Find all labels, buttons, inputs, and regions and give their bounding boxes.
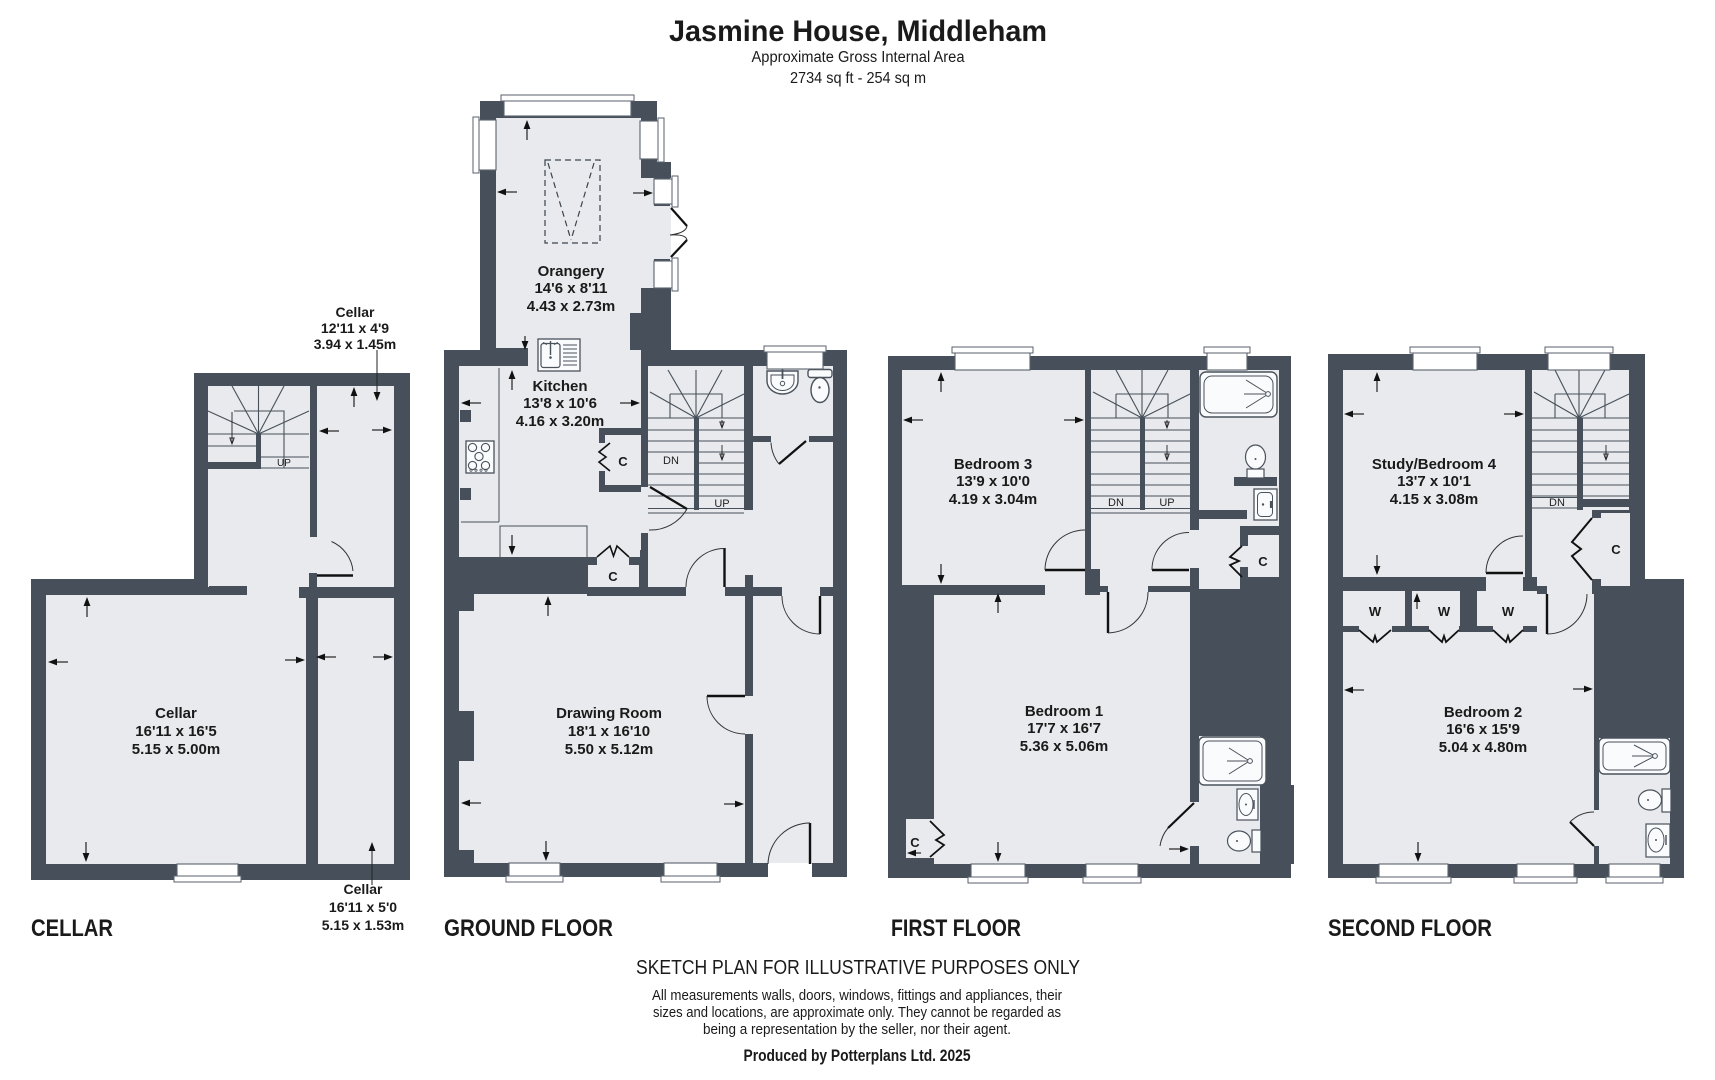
svg-text:Cellar: Cellar xyxy=(155,705,197,722)
svg-text:C: C xyxy=(1611,542,1621,557)
svg-text:5.36 x 5.06m: 5.36 x 5.06m xyxy=(1020,738,1108,755)
svg-text:4.16 x 3.20m: 4.16 x 3.20m xyxy=(516,413,604,430)
svg-text:5.50 x 5.12m: 5.50 x 5.12m xyxy=(565,741,653,758)
svg-text:13'7 x 10'1: 13'7 x 10'1 xyxy=(1397,473,1471,490)
svg-text:UP: UP xyxy=(277,458,291,469)
svg-text:2734 sq ft - 254 sq m: 2734 sq ft - 254 sq m xyxy=(790,70,926,87)
svg-text:C: C xyxy=(608,569,618,584)
svg-text:5.15 x 5.00m: 5.15 x 5.00m xyxy=(132,741,220,758)
svg-text:W: W xyxy=(1438,604,1451,619)
svg-text:3.94 x 1.45m: 3.94 x 1.45m xyxy=(314,336,397,352)
svg-text:Bedroom 2: Bedroom 2 xyxy=(1444,704,1522,721)
svg-text:5.04 x 4.80m: 5.04 x 4.80m xyxy=(1439,739,1527,756)
svg-text:14'6 x 8'11: 14'6 x 8'11 xyxy=(534,280,607,297)
svg-text:18'1 x 16'10: 18'1 x 16'10 xyxy=(568,723,650,740)
svg-text:13'9 x 10'0: 13'9 x 10'0 xyxy=(956,473,1030,490)
svg-text:13'8 x 10'6: 13'8 x 10'6 xyxy=(523,395,597,412)
svg-text:Bedroom 1: Bedroom 1 xyxy=(1025,703,1103,720)
svg-text:4.15 x 3.08m: 4.15 x 3.08m xyxy=(1390,491,1478,508)
svg-text:17'7 x 16'7: 17'7 x 16'7 xyxy=(1027,720,1101,737)
svg-text:5.15 x 1.53m: 5.15 x 1.53m xyxy=(322,917,405,933)
svg-text:FIRST FLOOR: FIRST FLOOR xyxy=(891,915,1021,942)
svg-text:GROUND FLOOR: GROUND FLOOR xyxy=(444,915,613,942)
svg-text:Kitchen: Kitchen xyxy=(532,378,587,395)
svg-text:Cellar: Cellar xyxy=(336,304,375,320)
svg-text:SECOND FLOOR: SECOND FLOOR xyxy=(1328,915,1492,942)
svg-text:C: C xyxy=(910,835,920,850)
svg-text:All measurements walls, doors,: All measurements walls, doors, windows, … xyxy=(652,987,1062,1004)
svg-text:W: W xyxy=(1502,604,1515,619)
svg-text:UP: UP xyxy=(714,498,729,510)
svg-text:Drawing Room: Drawing Room xyxy=(556,705,662,722)
svg-text:DN: DN xyxy=(1108,497,1124,509)
svg-text:DN: DN xyxy=(663,455,679,467)
svg-text:16'11 x 16'5: 16'11 x 16'5 xyxy=(135,723,216,740)
svg-text:Produced by Potterplans Ltd. 2: Produced by Potterplans Ltd. 2025 xyxy=(744,1046,971,1065)
svg-text:UP: UP xyxy=(1159,497,1174,509)
svg-text:DN: DN xyxy=(1549,497,1565,509)
svg-text:12'11 x 4'9: 12'11 x 4'9 xyxy=(321,320,389,336)
svg-text:4.43 x 2.73m: 4.43 x 2.73m xyxy=(527,298,615,315)
svg-text:Study/Bedroom 4: Study/Bedroom 4 xyxy=(1372,456,1497,473)
svg-text:4.19 x 3.04m: 4.19 x 3.04m xyxy=(949,491,1037,508)
svg-text:CELLAR: CELLAR xyxy=(31,915,113,942)
svg-text:Jasmine House, Middleham: Jasmine House, Middleham xyxy=(669,15,1047,48)
svg-text:sizes and locations, are appro: sizes and locations, are approximate onl… xyxy=(653,1004,1061,1021)
svg-text:SKETCH PLAN FOR ILLUSTRATIVE P: SKETCH PLAN FOR ILLUSTRATIVE PURPOSES ON… xyxy=(636,956,1080,979)
svg-text:Cellar: Cellar xyxy=(344,881,383,897)
svg-text:16'11 x 5'0: 16'11 x 5'0 xyxy=(329,899,397,915)
svg-text:C: C xyxy=(618,454,628,469)
svg-text:being a representation by the: being a representation by the seller, no… xyxy=(703,1021,1011,1038)
svg-text:C: C xyxy=(1258,554,1268,569)
svg-text:16'6 x 15'9: 16'6 x 15'9 xyxy=(1446,721,1520,738)
svg-text:Orangery: Orangery xyxy=(538,263,605,280)
svg-text:Bedroom 3: Bedroom 3 xyxy=(954,456,1032,473)
svg-text:Approximate Gross Internal Are: Approximate Gross Internal Area xyxy=(752,49,965,66)
svg-text:W: W xyxy=(1369,604,1382,619)
